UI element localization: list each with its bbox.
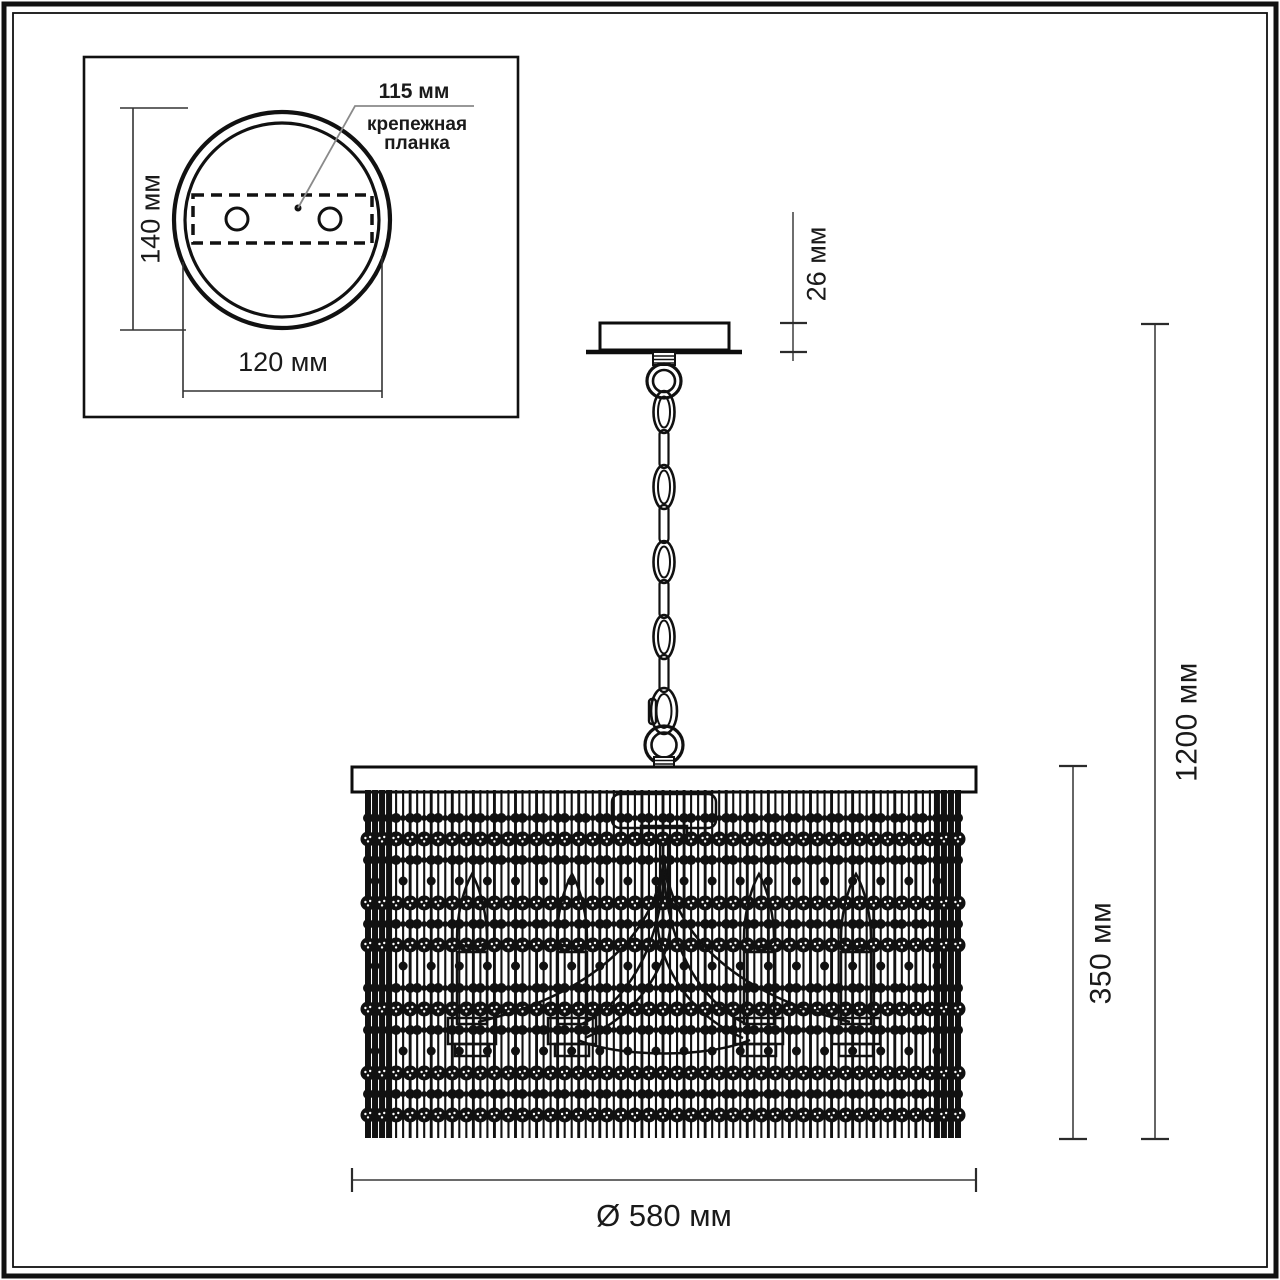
bead-facet	[816, 1074, 818, 1076]
bead-facet	[940, 1071, 942, 1073]
bead-facet	[901, 1010, 903, 1012]
bead-facet	[578, 1010, 580, 1012]
bead-facet	[875, 836, 877, 838]
bead-facet	[901, 946, 903, 948]
bead-facet	[788, 1010, 790, 1012]
bead-facet	[732, 946, 734, 948]
bead-facet	[917, 836, 919, 838]
bead-facet	[788, 1074, 790, 1076]
bead-facet	[521, 840, 523, 842]
bead-facet	[734, 836, 736, 838]
bead	[581, 855, 591, 865]
bead	[939, 813, 949, 823]
bead-facet	[406, 1071, 408, 1073]
bead	[918, 855, 928, 865]
bead-facet	[592, 1010, 594, 1012]
bead-facet	[509, 836, 511, 838]
bead-facet	[451, 1116, 453, 1118]
bead-facet	[631, 837, 633, 839]
bead-facet	[453, 1070, 455, 1072]
bead-facet	[776, 942, 778, 944]
bead	[707, 1025, 717, 1035]
chain-link-edge	[660, 655, 669, 692]
bead-facet	[844, 1010, 846, 1012]
bead-facet	[873, 904, 875, 906]
bead	[728, 855, 738, 865]
bead-sparse	[371, 877, 380, 886]
bead-facet	[533, 943, 535, 945]
bead-facet	[467, 836, 469, 838]
bead-facet	[929, 1074, 931, 1076]
bead-facet	[870, 901, 872, 903]
bead-facet	[634, 840, 636, 842]
bead-sparse	[820, 877, 829, 886]
bead-facet	[774, 1074, 776, 1076]
bead-facet	[788, 840, 790, 842]
bead	[412, 983, 422, 993]
bead-facet	[662, 1074, 664, 1076]
bead-facet	[828, 943, 830, 945]
bead-facet	[533, 1113, 535, 1115]
bead-facet	[575, 901, 577, 903]
bead-facet	[746, 946, 748, 948]
bead-facet	[437, 946, 439, 948]
bead-facet	[620, 1074, 622, 1076]
bead-facet	[453, 836, 455, 838]
bead-facet	[538, 1070, 540, 1072]
bead-facet	[592, 840, 594, 842]
bead-facet	[774, 904, 776, 906]
bead	[876, 1089, 886, 1099]
bead	[433, 1089, 443, 1099]
bead	[433, 1025, 443, 1035]
bead	[665, 1089, 675, 1099]
bead-facet	[664, 1070, 666, 1072]
bead-facet	[760, 1116, 762, 1118]
bead-facet	[676, 1010, 678, 1012]
bead-facet	[448, 1113, 450, 1115]
bead-facet	[493, 1074, 495, 1076]
bead-sparse	[876, 877, 885, 886]
bead-facet	[409, 946, 411, 948]
bead	[391, 1025, 401, 1035]
bead-facet	[395, 1074, 397, 1076]
bead-facet	[364, 943, 366, 945]
bead-facet	[676, 1116, 678, 1118]
bead-facet	[940, 943, 942, 945]
bead-facet	[549, 904, 551, 906]
bead-facet	[706, 942, 708, 944]
bead-facet	[940, 837, 942, 839]
bead-facet	[467, 942, 469, 944]
bead-facet	[673, 1071, 675, 1073]
bead	[770, 1089, 780, 1099]
bead-facet	[715, 837, 717, 839]
bead-facet	[538, 1006, 540, 1008]
bead-facet	[788, 1116, 790, 1118]
bead-facet	[687, 1113, 689, 1115]
bead-facet	[364, 1007, 366, 1009]
bead	[496, 1089, 506, 1099]
bead	[686, 855, 696, 865]
bead-facet	[493, 840, 495, 842]
bead-facet	[397, 1070, 399, 1072]
bead-facet	[729, 837, 731, 839]
bead-facet	[701, 901, 703, 903]
bead	[897, 983, 907, 993]
bead-facet	[917, 1070, 919, 1072]
bead-facet	[477, 837, 479, 839]
bead	[686, 1089, 696, 1099]
bead-facet	[378, 1071, 380, 1073]
bead-facet	[748, 836, 750, 838]
bead-facet	[828, 837, 830, 839]
bead-large	[951, 938, 966, 953]
bead-facet	[959, 1112, 961, 1114]
bead-facet	[397, 1112, 399, 1114]
bead-sparse	[848, 1047, 857, 1056]
bead-facet	[903, 900, 905, 902]
bead-facet	[833, 900, 835, 902]
bead-facet	[367, 1074, 369, 1076]
bead-facet	[505, 943, 507, 945]
bead-facet	[954, 943, 956, 945]
bead-facet	[648, 1074, 650, 1076]
bead-facet	[732, 1116, 734, 1118]
bead-facet	[493, 904, 495, 906]
bead-facet	[603, 837, 605, 839]
bead-facet	[521, 946, 523, 948]
bead-facet	[622, 836, 624, 838]
chain-link-inner	[658, 471, 670, 504]
bead-facet	[367, 840, 369, 842]
bead-facet	[434, 1113, 436, 1115]
bead-facet	[505, 901, 507, 903]
bead	[412, 813, 422, 823]
bead-facet	[491, 1007, 493, 1009]
bead-facet	[381, 840, 383, 842]
bead-facet	[774, 840, 776, 842]
bead-facet	[631, 1113, 633, 1115]
bead-facet	[617, 837, 619, 839]
bead-facet	[437, 904, 439, 906]
bead-sparse	[848, 962, 857, 971]
bead-facet	[563, 840, 565, 842]
bead-facet	[776, 836, 778, 838]
bead-sparse	[932, 962, 941, 971]
bead-facet	[535, 1074, 537, 1076]
bead	[770, 855, 780, 865]
bead-facet	[617, 901, 619, 903]
bead-facet	[622, 942, 624, 944]
callout-caption-line2: планка	[384, 133, 450, 154]
bead-facet	[493, 1116, 495, 1118]
bead-facet	[519, 1071, 521, 1073]
bead-facet	[378, 901, 380, 903]
bead-facet	[720, 1070, 722, 1072]
bead-facet	[622, 1070, 624, 1072]
bead-facet	[762, 1006, 764, 1008]
bead-facet	[453, 1112, 455, 1114]
bead-facet	[538, 900, 540, 902]
bead-sparse	[820, 1047, 829, 1056]
chain-link-edge	[660, 580, 669, 618]
bead-facet	[411, 1070, 413, 1072]
bead	[370, 1025, 380, 1035]
bead-facet	[364, 1071, 366, 1073]
bead-facet	[491, 1071, 493, 1073]
bead-facet	[451, 1010, 453, 1012]
bead-facet	[495, 900, 497, 902]
bead-facet	[954, 1071, 956, 1073]
bead-facet	[364, 901, 366, 903]
bead-facet	[898, 1071, 900, 1073]
bead-facet	[383, 942, 385, 944]
bead	[897, 1089, 907, 1099]
bead-facet	[397, 836, 399, 838]
bead-facet	[926, 1007, 928, 1009]
bead-facet	[451, 904, 453, 906]
bead-facet	[491, 1113, 493, 1115]
hang-ring-top-inner	[653, 370, 675, 392]
bead-sparse	[736, 877, 745, 886]
bead	[728, 919, 738, 929]
bead-facet	[887, 1074, 889, 1076]
bead-sparse	[483, 1047, 492, 1056]
bead-sparse	[932, 1047, 941, 1056]
bead-facet	[898, 943, 900, 945]
bead-facet	[819, 1112, 821, 1114]
bead-facet	[875, 1070, 877, 1072]
bead-facet	[776, 900, 778, 902]
bead-facet	[858, 840, 860, 842]
bead-facet	[645, 1007, 647, 1009]
bead-facet	[678, 1006, 680, 1008]
bead-facet	[589, 1071, 591, 1073]
bead-facet	[561, 837, 563, 839]
bead-facet	[786, 1007, 788, 1009]
bead-facet	[926, 943, 928, 945]
bead	[953, 813, 963, 823]
bead-facet	[931, 836, 933, 838]
bead-facet	[954, 1007, 956, 1009]
bead-facet	[959, 836, 961, 838]
bead-facet	[451, 840, 453, 842]
bead	[897, 919, 907, 929]
bead	[581, 813, 591, 823]
bead-sparse	[792, 1047, 801, 1056]
bead-sparse	[876, 962, 885, 971]
bead-facet	[533, 901, 535, 903]
bead-facet	[842, 1113, 844, 1115]
bead-facet	[870, 1071, 872, 1073]
bead-facet	[844, 946, 846, 948]
bead-facet	[631, 943, 633, 945]
bead-facet	[364, 837, 366, 839]
bead	[475, 983, 485, 993]
bead-facet	[423, 1116, 425, 1118]
bead	[813, 855, 823, 865]
carabiner-inner	[657, 694, 672, 728]
bead-facet	[957, 1116, 959, 1118]
bead-facet	[549, 1116, 551, 1118]
bead-facet	[692, 942, 694, 944]
bead-facet	[760, 1010, 762, 1012]
bead-facet	[479, 840, 481, 842]
bead	[475, 1089, 485, 1099]
bead-facet	[453, 942, 455, 944]
bead-facet	[617, 1007, 619, 1009]
bead-facet	[959, 1070, 961, 1072]
bead-facet	[819, 1070, 821, 1072]
bead-facet	[701, 837, 703, 839]
bead-facet	[842, 1071, 844, 1073]
bead	[623, 1089, 633, 1099]
bead-facet	[664, 1112, 666, 1114]
bead	[876, 813, 886, 823]
bead	[749, 855, 759, 865]
bead-facet	[776, 1070, 778, 1072]
bead-facet	[406, 901, 408, 903]
bead-facet	[369, 1070, 371, 1072]
chain-link-edge	[660, 505, 669, 543]
bead	[953, 855, 963, 865]
bead-facet	[901, 1116, 903, 1118]
bead-facet	[493, 1010, 495, 1012]
bead-facet	[631, 901, 633, 903]
bead	[897, 1025, 907, 1035]
bead-facet	[383, 836, 385, 838]
bead-facet	[603, 1113, 605, 1115]
bead-facet	[549, 840, 551, 842]
bead	[939, 855, 949, 865]
bead-facet	[552, 1006, 554, 1008]
bead-facet	[395, 840, 397, 842]
bead-facet	[634, 904, 636, 906]
bead	[918, 919, 928, 929]
bead-facet	[804, 836, 806, 838]
bead-facet	[701, 1007, 703, 1009]
bead	[953, 919, 963, 929]
bead-facet	[509, 1070, 511, 1072]
bead-facet	[381, 946, 383, 948]
bead-facet	[594, 1112, 596, 1114]
bead-facet	[800, 943, 802, 945]
bead	[370, 983, 380, 993]
bead-facet	[804, 900, 806, 902]
bead-facet	[392, 901, 394, 903]
bead	[749, 919, 759, 929]
bead-facet	[659, 1113, 661, 1115]
bead-sparse	[904, 962, 913, 971]
bead-sparse	[399, 877, 408, 886]
bead-facet	[411, 1006, 413, 1008]
bead-facet	[706, 836, 708, 838]
bead-facet	[467, 1070, 469, 1072]
bead-facet	[701, 1071, 703, 1073]
bead	[623, 1025, 633, 1035]
bead-facet	[802, 840, 804, 842]
bead-facet	[381, 904, 383, 906]
bead-facet	[704, 840, 706, 842]
bead-large	[951, 1108, 966, 1123]
bead	[939, 1089, 949, 1099]
bead-facet	[566, 1112, 568, 1114]
bead-facet	[690, 946, 692, 948]
bead-facet	[732, 1074, 734, 1076]
bead-facet	[369, 942, 371, 944]
bead-facet	[889, 900, 891, 902]
bead	[412, 855, 422, 865]
bead-facet	[842, 901, 844, 903]
bead-facet	[662, 1116, 664, 1118]
bead-sparse	[876, 1047, 885, 1056]
bead-facet	[495, 1112, 497, 1114]
bead	[496, 813, 506, 823]
bead-facet	[434, 1071, 436, 1073]
bead	[686, 983, 696, 993]
bead-facet	[423, 1074, 425, 1076]
bead	[834, 1025, 844, 1035]
bead-facet	[786, 837, 788, 839]
bead-facet	[603, 943, 605, 945]
bead-facet	[423, 840, 425, 842]
bead-facet	[943, 946, 945, 948]
bead-facet	[814, 1113, 816, 1115]
bead-facet	[788, 904, 790, 906]
bead-facet	[912, 943, 914, 945]
bead-facet	[507, 1116, 509, 1118]
bead-facet	[704, 1116, 706, 1118]
bead-facet	[594, 836, 596, 838]
ceiling-canopy	[600, 323, 729, 350]
bead-facet	[552, 836, 554, 838]
bead-facet	[437, 840, 439, 842]
bead-facet	[887, 904, 889, 906]
bead-facet	[575, 1113, 577, 1115]
bead-facet	[690, 1116, 692, 1118]
bead-facet	[800, 1113, 802, 1115]
bead-facet	[692, 900, 694, 902]
bead-facet	[592, 1116, 594, 1118]
bead-facet	[748, 1112, 750, 1114]
bead-facet	[861, 836, 863, 838]
bead-facet	[758, 837, 760, 839]
bead-facet	[729, 1071, 731, 1073]
bead-facet	[790, 942, 792, 944]
bead-facet	[692, 1070, 694, 1072]
bead-facet	[645, 1071, 647, 1073]
bead-facet	[519, 837, 521, 839]
bead-facet	[439, 1006, 441, 1008]
bead-facet	[383, 900, 385, 902]
bead-facet	[917, 942, 919, 944]
bead-facet	[758, 1071, 760, 1073]
bead-facet	[706, 1112, 708, 1114]
bead-sparse	[539, 962, 548, 971]
bead-facet	[819, 900, 821, 902]
bead-facet	[774, 946, 776, 948]
bead-facet	[592, 1074, 594, 1076]
bead	[560, 813, 570, 823]
bead	[391, 813, 401, 823]
bead-facet	[861, 900, 863, 902]
bead-facet	[743, 837, 745, 839]
bead-sparse	[371, 962, 380, 971]
bead-facet	[367, 946, 369, 948]
bead-facet	[945, 1006, 947, 1008]
bead	[433, 813, 443, 823]
